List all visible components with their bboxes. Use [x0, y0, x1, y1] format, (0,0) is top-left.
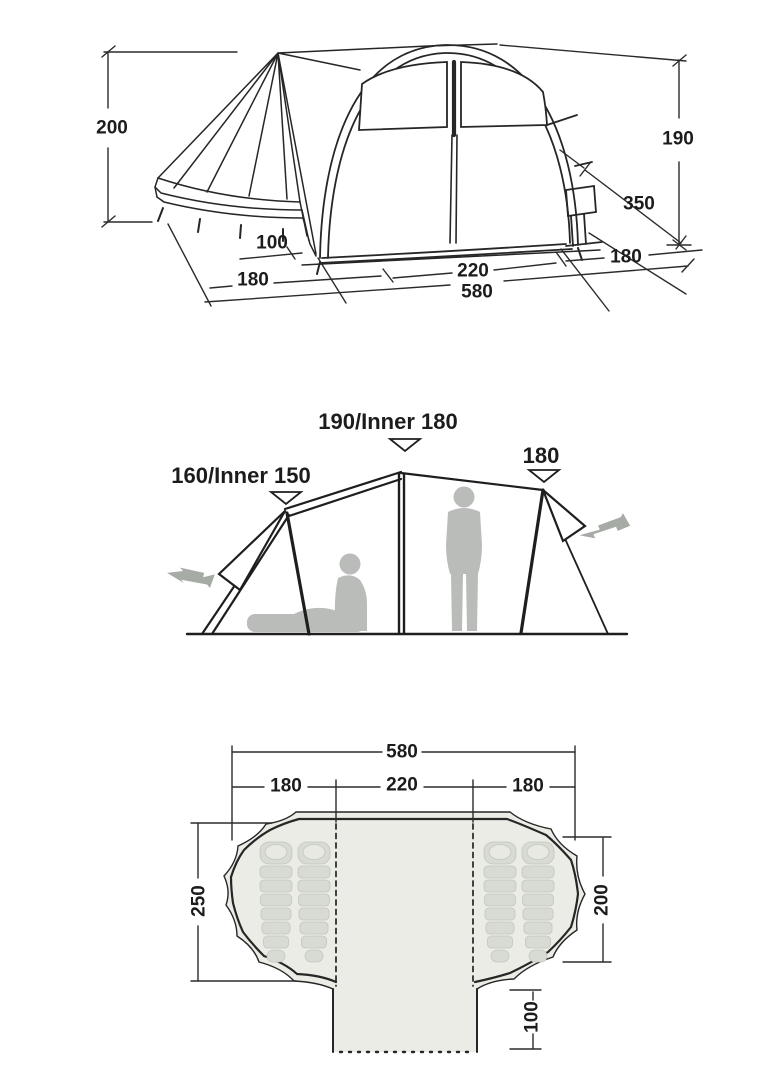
dim-label-left-peak-height: 160/Inner 150	[171, 465, 310, 487]
center-pole	[399, 473, 404, 633]
side-view-drawing	[102, 44, 702, 311]
dome-section	[302, 45, 602, 274]
dim-label-porch-offset: 100	[256, 234, 288, 253]
dim-label-total-length: 580	[461, 283, 493, 302]
dim-label-center-section: 220	[457, 262, 489, 281]
dim-label-height-right: 190	[662, 130, 694, 149]
dim-label-height-left: 200	[96, 119, 128, 138]
tent-spec-diagram: 200 190 350 100 180 220 180 580 160/Inne…	[0, 0, 780, 1080]
dim-label-plan-porch-depth: 100	[523, 1001, 542, 1033]
dim-label-plan-right-depth: 200	[593, 884, 612, 916]
dim-label-side-depth: 350	[623, 195, 655, 214]
person-standing-icon	[446, 487, 482, 632]
dim-label-plan-center-section: 220	[386, 776, 418, 795]
dim-label-right-section: 180	[610, 248, 642, 267]
dim-label-plan-right-section: 180	[512, 777, 544, 796]
dim-label-plan-left-depth: 250	[190, 885, 209, 917]
dim-label-right-peak-height: 180	[523, 445, 560, 467]
window-left	[359, 62, 447, 130]
diagram-line-art	[0, 0, 780, 1080]
left-vent-flap	[219, 511, 285, 590]
dim-label-plan-total-length: 580	[386, 743, 418, 762]
dim-label-plan-left-section: 180	[270, 777, 302, 796]
marker-triangle-icon	[271, 439, 559, 504]
right-vent-flap	[543, 490, 585, 541]
dim-label-left-section: 180	[237, 271, 269, 290]
window-right	[461, 62, 547, 127]
dim-label-center-peak-height: 190/Inner 180	[318, 411, 457, 433]
